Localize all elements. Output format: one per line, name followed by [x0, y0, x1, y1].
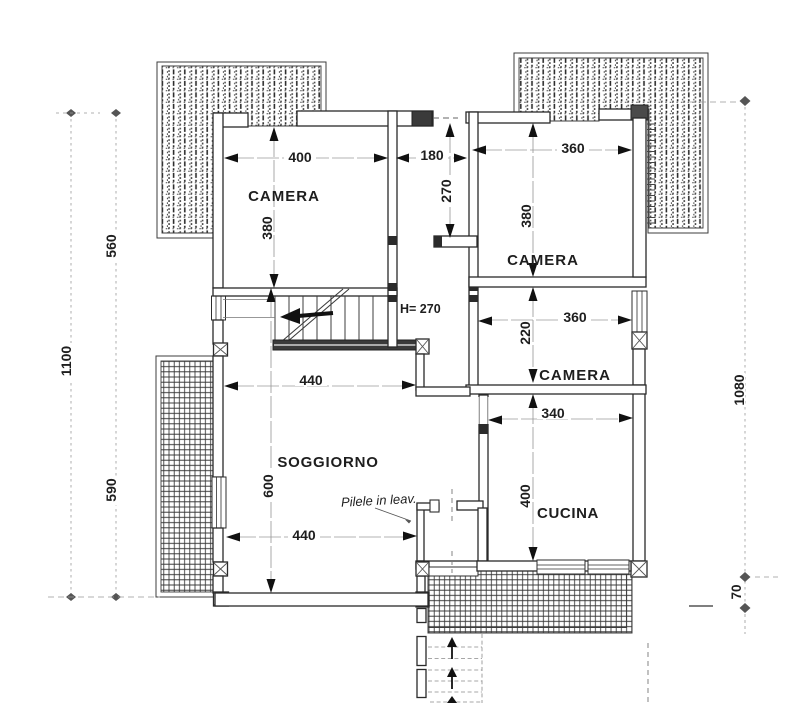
- svg-text:H= 270: H= 270: [400, 302, 441, 316]
- svg-text:220: 220: [517, 321, 533, 345]
- svg-text:270: 270: [438, 179, 454, 203]
- svg-text:600: 600: [260, 474, 276, 498]
- svg-text:380: 380: [259, 216, 275, 240]
- svg-text:400: 400: [288, 149, 312, 165]
- svg-text:590: 590: [103, 478, 119, 502]
- svg-text:1100: 1100: [58, 346, 74, 377]
- svg-text:1080: 1080: [731, 374, 747, 405]
- svg-text:360: 360: [563, 309, 587, 325]
- svg-text:440: 440: [299, 372, 323, 388]
- svg-text:CAMERA: CAMERA: [248, 188, 320, 205]
- svg-text:440: 440: [292, 527, 316, 543]
- svg-text:560: 560: [103, 234, 119, 258]
- svg-text:400: 400: [517, 484, 533, 508]
- svg-text:70: 70: [729, 584, 744, 599]
- svg-text:CUCINA: CUCINA: [537, 505, 599, 522]
- svg-text:SOGGIORNO: SOGGIORNO: [277, 454, 378, 471]
- svg-text:340: 340: [541, 405, 565, 421]
- svg-text:180: 180: [420, 147, 444, 163]
- svg-text:CAMERA: CAMERA: [539, 367, 611, 384]
- svg-text:360: 360: [561, 140, 585, 156]
- svg-text:CAMERA: CAMERA: [507, 252, 579, 269]
- svg-text:380: 380: [518, 204, 534, 228]
